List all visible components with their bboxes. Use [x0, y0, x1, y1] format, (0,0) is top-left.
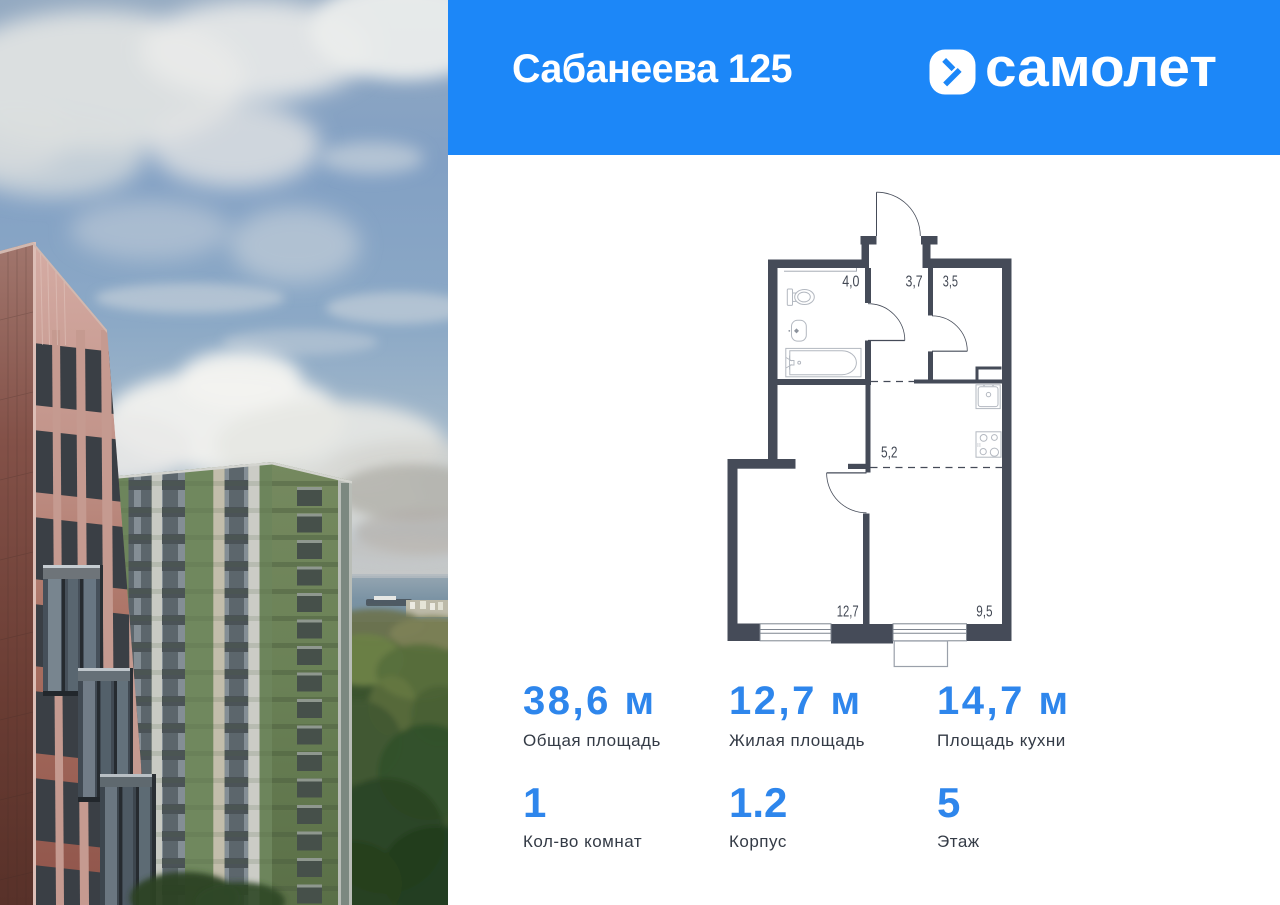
svg-text:12,7: 12,7: [837, 604, 859, 621]
svg-text:4,0: 4,0: [842, 274, 860, 291]
svg-text:5,2: 5,2: [881, 445, 898, 462]
svg-text:9,5: 9,5: [976, 604, 992, 621]
svg-text:3,5: 3,5: [943, 274, 958, 291]
svg-text:самолет: самолет: [985, 40, 1217, 98]
svg-text:3,7: 3,7: [906, 274, 923, 291]
